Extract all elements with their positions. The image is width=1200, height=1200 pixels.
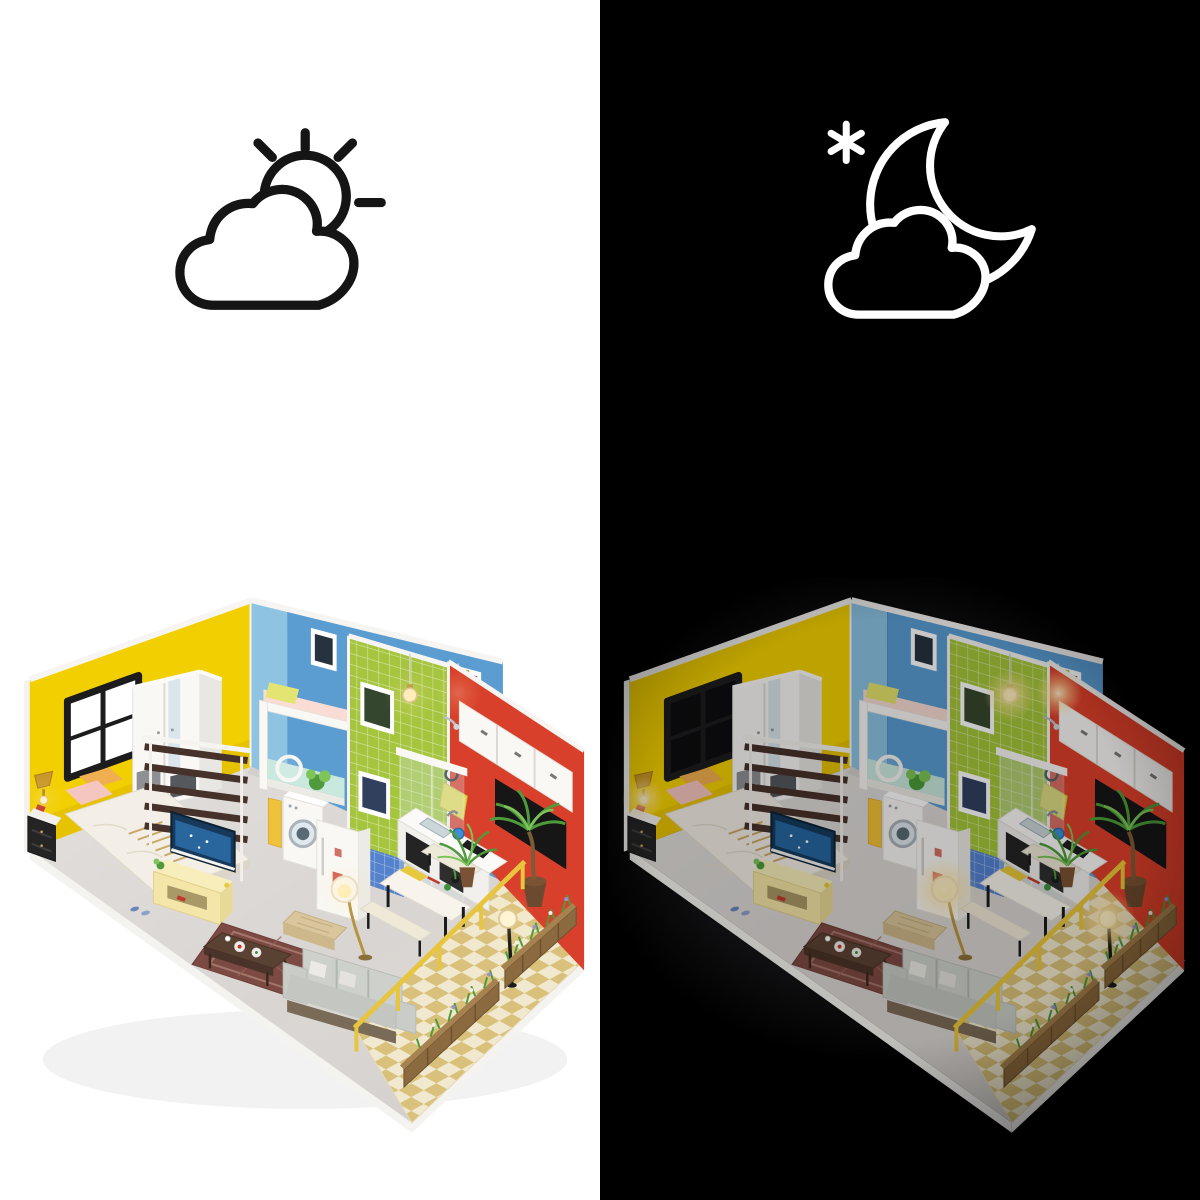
moon-star-cloud-icon xyxy=(803,102,1067,334)
product-comparison-image xyxy=(0,0,1200,1200)
star-icon xyxy=(831,124,861,160)
night-panel xyxy=(600,0,1200,1200)
dollhouse-photo-day xyxy=(8,578,592,1140)
day-panel xyxy=(0,0,600,1200)
sun-behind-cloud-icon xyxy=(172,106,422,332)
cloud-icon xyxy=(180,189,354,305)
dollhouse-photo-night xyxy=(608,578,1192,1140)
